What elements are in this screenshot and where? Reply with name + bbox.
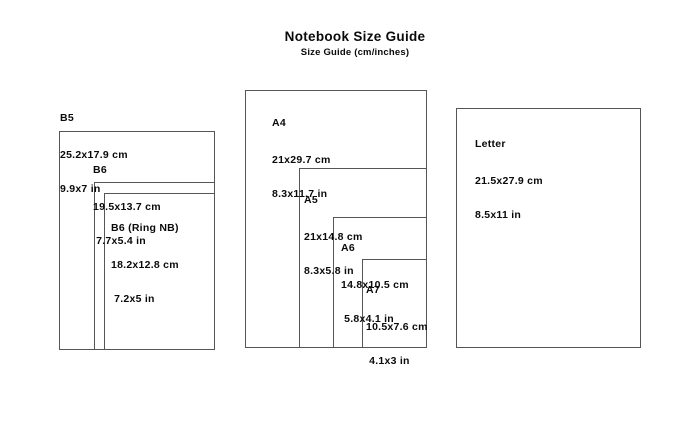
b6-name: B6 bbox=[93, 165, 161, 177]
a4-cm: 21x29.7 cm bbox=[272, 155, 331, 167]
a5-name: A5 bbox=[304, 195, 363, 207]
a7-name: A7 bbox=[366, 285, 428, 297]
a7-label: A7 10.5x7.6 cm 4.1x3 in bbox=[366, 262, 428, 391]
a7-inches: 4.1x3 in bbox=[366, 356, 428, 368]
a4-name: A4 bbox=[272, 118, 331, 130]
a6-name: A6 bbox=[341, 243, 409, 255]
a7-cm: 10.5x7.6 cm bbox=[366, 322, 428, 334]
letter-cm: 21.5x27.9 cm bbox=[475, 176, 543, 188]
b5-name: B5 bbox=[60, 113, 128, 125]
page-title: Notebook Size Guide bbox=[5, 29, 700, 44]
b6-ring-nb-name: B6 (Ring NB) bbox=[111, 223, 179, 235]
b6-ring-nb-label: B6 (Ring NB) 18.2x12.8 cm 7.2x5 in bbox=[111, 200, 179, 329]
letter-label: Letter 21.5x27.9 cm 8.5x11 in bbox=[475, 116, 543, 245]
b6-ring-nb-inches: 7.2x5 in bbox=[111, 294, 179, 306]
letter-inches: 8.5x11 in bbox=[475, 210, 543, 222]
size-guide-diagram: Notebook Size Guide Size Guide (cm/inche… bbox=[0, 0, 700, 428]
b6-ring-nb-cm: 18.2x12.8 cm bbox=[111, 260, 179, 272]
letter-name: Letter bbox=[475, 139, 543, 151]
page-subtitle: Size Guide (cm/inches) bbox=[5, 47, 700, 58]
